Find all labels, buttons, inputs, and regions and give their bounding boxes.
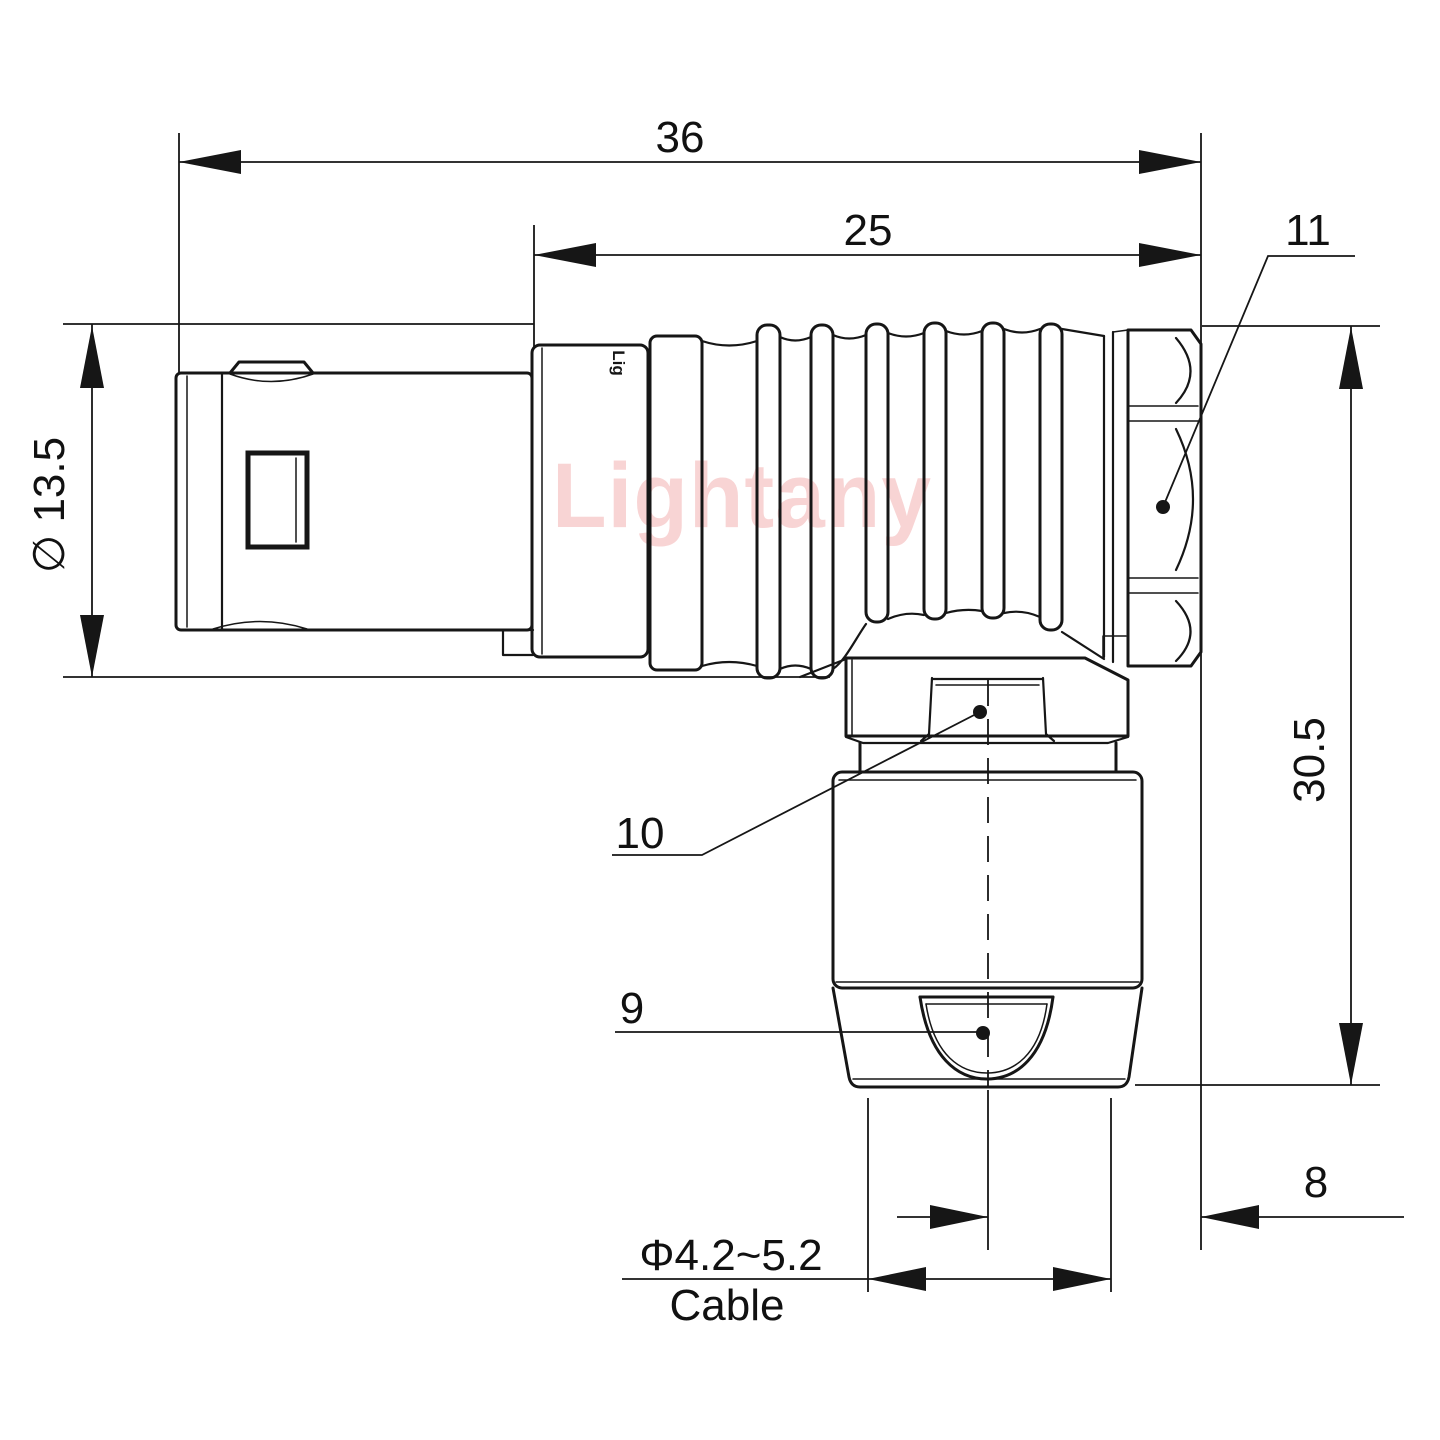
callout-11-value: 11	[1285, 206, 1331, 255]
callout-10-value: 10	[616, 809, 665, 858]
elbow-hex	[846, 636, 1128, 743]
callout-10: 10	[612, 712, 980, 858]
cable-label: Cable	[670, 1281, 785, 1330]
callout-dot-11	[1156, 500, 1170, 514]
dimension-30-5: 30.5	[1135, 326, 1380, 1085]
dim-cable-range-value: Φ4.2~5.2	[639, 1231, 822, 1280]
dim-25-value: 25	[844, 206, 893, 255]
part-marking-text: Lig	[609, 350, 628, 376]
dimension-8: 8	[897, 1090, 1404, 1250]
coupling-nut	[1128, 330, 1201, 666]
dim-8-value: 8	[1304, 1158, 1328, 1207]
connector-drawing: Lightany Lig	[0, 0, 1440, 1440]
latch-window	[248, 453, 307, 547]
rear-sleeve	[176, 362, 532, 630]
dimension-cable: Φ4.2~5.2 Cable	[622, 1098, 1111, 1330]
technical-drawing-page: Lightany Lig	[0, 0, 1440, 1440]
connector-body: Lig	[176, 323, 1201, 1087]
dim-30-5-value: 30.5	[1285, 717, 1334, 803]
dim-36-value: 36	[656, 113, 705, 162]
watermark-text: Lightany	[552, 445, 932, 547]
callout-9-value: 9	[620, 984, 644, 1033]
dim-13-5-value: ∅ 13.5	[25, 437, 74, 573]
dimension-25: 25	[534, 206, 1201, 347]
